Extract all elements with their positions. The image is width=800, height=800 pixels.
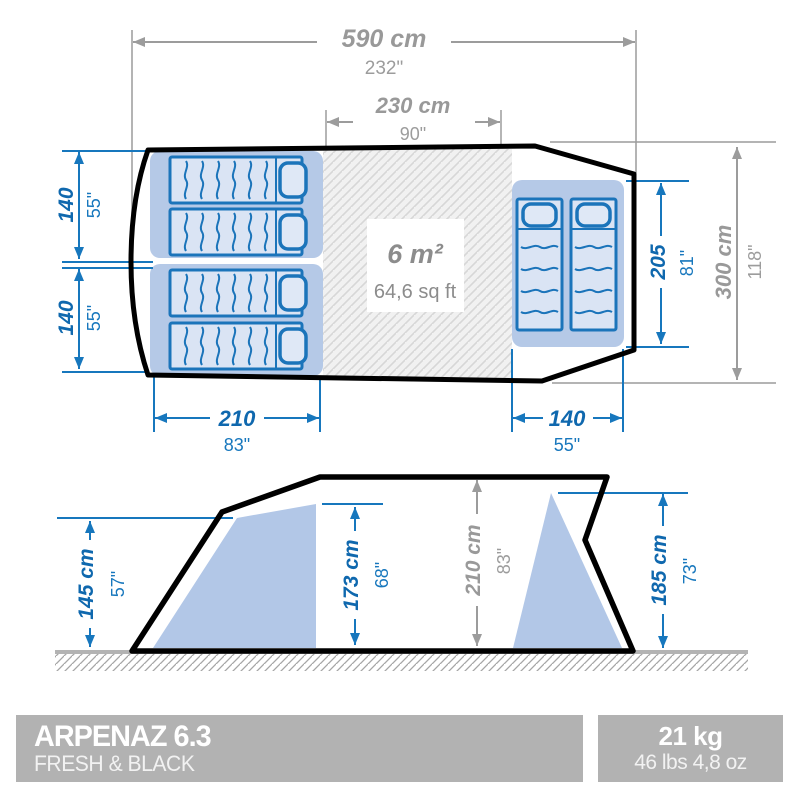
height-rear-imperial: 73" bbox=[680, 558, 700, 584]
total-width-imperial: 232" bbox=[365, 58, 403, 79]
dim-living-width: 230 cm 90" bbox=[327, 93, 500, 144]
height-rear-metric: 185 cm bbox=[648, 534, 671, 605]
bedroom-right-length-metric: 205 bbox=[647, 244, 670, 280]
living-width-metric: 230 cm bbox=[375, 93, 451, 118]
bedroom-left-width-metric: 210 bbox=[218, 406, 256, 431]
bedroom-depth-bottom-imperial: 55" bbox=[84, 305, 104, 331]
dim-bedroom-right-length: 205 81" bbox=[647, 183, 697, 344]
bedroom-right-width-imperial: 55" bbox=[554, 435, 580, 455]
weight-metric: 21 kg bbox=[659, 722, 723, 751]
bedroom-depth-top-imperial: 55" bbox=[84, 192, 104, 218]
floor-plan: 6 m² 64,6 sq ft 590 cm 232" 230 cm 90" 1… bbox=[55, 24, 776, 455]
total-width-metric: 590 cm bbox=[342, 25, 427, 53]
bedroom-depth-top-metric: 140 bbox=[55, 187, 78, 222]
weight-imperial: 46 lbs 4,8 oz bbox=[634, 751, 747, 775]
height-door-metric: 173 cm bbox=[340, 539, 363, 610]
dim-height-rear: 185 cm 73" bbox=[648, 494, 700, 648]
living-area-imperial: 64,6 sq ft bbox=[374, 281, 457, 303]
product-variant: FRESH & BLACK bbox=[34, 752, 194, 776]
ground-hatch bbox=[55, 654, 748, 671]
dim-bedroom-left-width: 210 83" bbox=[155, 403, 319, 455]
height-peak-metric: 210 cm bbox=[462, 524, 485, 596]
dim-total-width: 590 cm 232" bbox=[133, 24, 635, 79]
product-name-banner: ARPENAZ 6.3 FRESH & BLACK bbox=[16, 715, 583, 782]
dim-bedroom-right-width: 140 55" bbox=[513, 403, 622, 455]
dim-height-bedroom-left: 145 cm 57" bbox=[75, 521, 128, 647]
total-depth-metric: 300 cm bbox=[711, 225, 736, 300]
height-door-imperial: 68" bbox=[372, 562, 392, 588]
height-bedroom-left-imperial: 57" bbox=[108, 571, 128, 597]
weight-banner: 21 kg 46 lbs 4,8 oz bbox=[598, 715, 783, 782]
height-bedroom-left-metric: 145 cm bbox=[75, 548, 98, 619]
product-name: ARPENAZ 6.3 bbox=[34, 721, 211, 753]
dim-total-depth: 300 cm 118" bbox=[711, 147, 765, 380]
total-depth-imperial: 118" bbox=[745, 244, 765, 279]
side-view: 145 cm 57" 173 cm 68" 210 cm 83" 185 cm … bbox=[55, 477, 748, 671]
bedroom-right-width-metric: 140 bbox=[549, 406, 586, 431]
bedroom-left-width-imperial: 83" bbox=[224, 435, 250, 455]
dim-bedroom-left-depth-top: 140 55" bbox=[55, 152, 104, 259]
height-peak-imperial: 83" bbox=[494, 548, 514, 574]
tent-dimension-diagram: 6 m² 64,6 sq ft 590 cm 232" 230 cm 90" 1… bbox=[0, 0, 800, 710]
dim-bedroom-left-depth-bottom: 140 55" bbox=[55, 269, 104, 369]
living-width-imperial: 90" bbox=[400, 124, 426, 144]
living-area-metric: 6 m² bbox=[387, 239, 444, 269]
bedroom-depth-bottom-metric: 140 bbox=[55, 300, 78, 335]
bedroom-right-length-imperial: 81" bbox=[677, 250, 697, 276]
